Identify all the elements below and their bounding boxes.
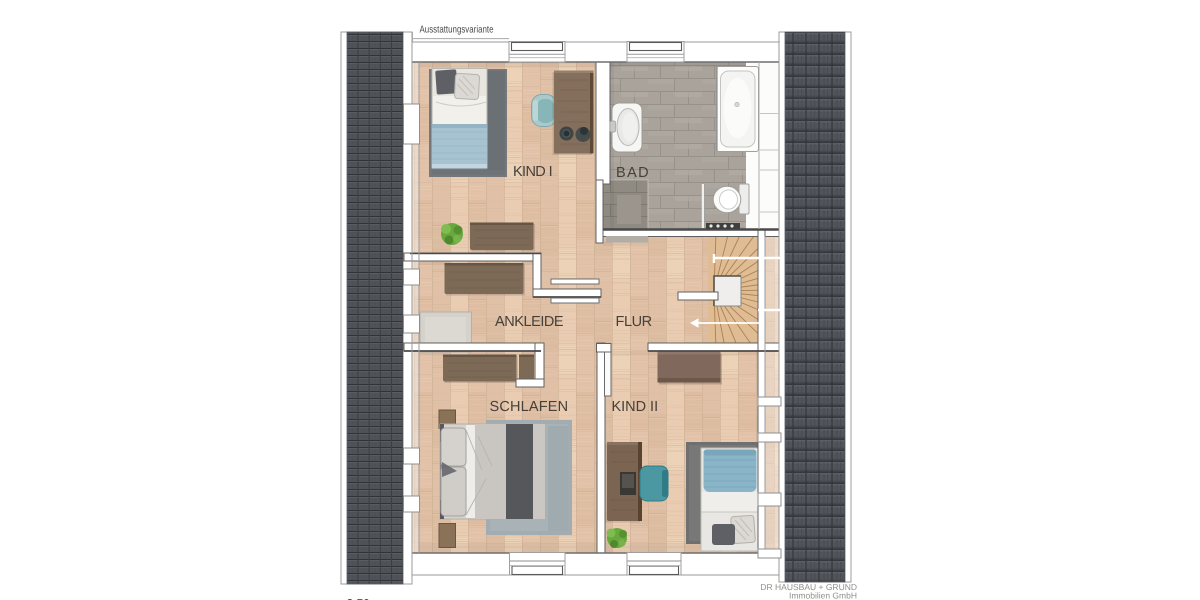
- svg-text:Immobilien GmbH: Immobilien GmbH: [789, 591, 857, 600]
- svg-text:KIND I: KIND I: [513, 164, 553, 180]
- svg-text:KIND II: KIND II: [612, 399, 659, 415]
- svg-text:Ausstattungsvariante: Ausstattungsvariante: [420, 25, 494, 36]
- svg-text:BAD: BAD: [616, 165, 649, 181]
- svg-text:SCHLAFEN: SCHLAFEN: [490, 399, 569, 415]
- svg-text:FLUR: FLUR: [616, 314, 653, 330]
- svg-text:2.50: 2.50: [347, 597, 371, 600]
- svg-text:ANKLEIDE: ANKLEIDE: [495, 314, 564, 330]
